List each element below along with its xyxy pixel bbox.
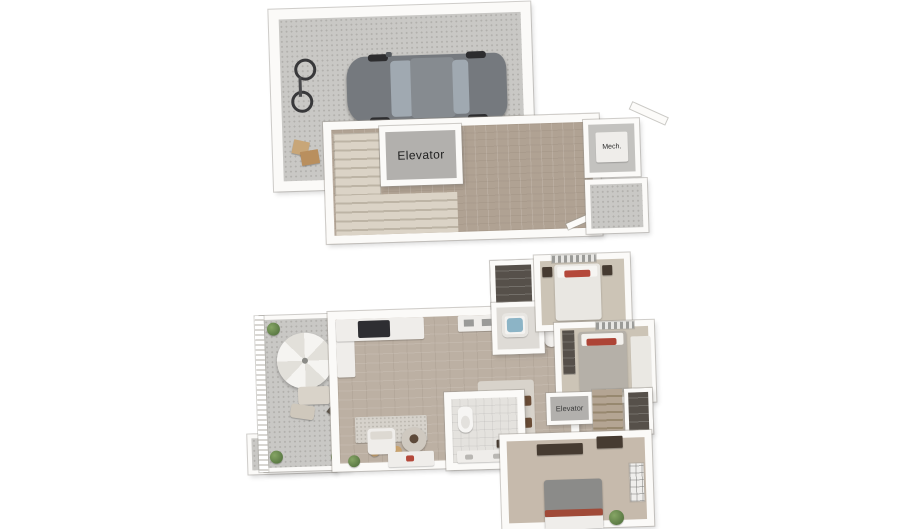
bicycle-wheel (294, 58, 317, 81)
potted-plant (270, 450, 283, 463)
table-centerpiece (409, 434, 418, 443)
car-rear-window (452, 60, 470, 114)
window (596, 321, 634, 329)
elevator-shaft-main: Elevator (546, 392, 593, 425)
sofa (367, 428, 396, 455)
mechanical-closet: Mech. (583, 118, 641, 178)
nightstand (602, 265, 612, 275)
patio-umbrella (276, 332, 334, 390)
storage-box (300, 149, 320, 166)
sofa-cushion (370, 431, 392, 440)
window (629, 463, 644, 501)
bed (578, 331, 628, 392)
mech-label: Mech. (602, 143, 621, 151)
red-accent-pillow (564, 270, 590, 278)
area-rug (630, 336, 652, 391)
sink-basin (465, 454, 473, 459)
umbrella-pole (302, 358, 308, 364)
car-mirror (386, 52, 392, 57)
decor-accent (406, 455, 414, 461)
elevator-shaft-garage: Elevator (379, 124, 463, 187)
bathtub (502, 313, 529, 338)
bed-sheets (545, 515, 603, 529)
potted-plant (348, 455, 360, 467)
bicycle-frame (298, 77, 302, 97)
sink (482, 319, 492, 326)
bathtub-water (507, 318, 523, 332)
elevator-label-main: Elevator (556, 403, 584, 413)
lounge-chair (298, 386, 331, 405)
potted-plant (267, 322, 280, 335)
red-accent-pillow (586, 338, 616, 346)
toilet-seat (461, 416, 470, 429)
small-appliance (464, 319, 474, 326)
car-roof (410, 57, 456, 118)
garage-level-plan: Elevator Mech. (266, 0, 642, 252)
lounge-chair (290, 403, 316, 420)
main-level-plan: Elevator (236, 248, 674, 529)
bed (554, 263, 602, 320)
potted-plant (609, 510, 624, 525)
cooktop (358, 320, 391, 338)
dresser (537, 443, 583, 455)
bicycle-wheel (291, 90, 314, 113)
staircase-lower-flight (335, 192, 458, 236)
elevator-label-garage: Elevator (397, 147, 445, 162)
bedroom-1 (534, 252, 632, 331)
closet-shelves (562, 330, 575, 374)
storage-room (585, 178, 649, 234)
car-wheel (466, 51, 486, 59)
wardrobe (596, 436, 622, 449)
nightstand (542, 267, 552, 277)
window (552, 255, 596, 263)
floor-plan-canvas: Elevator Mech. (0, 0, 900, 529)
bedroom-3 (499, 430, 654, 529)
water-heater: Mech. (595, 132, 628, 163)
car (346, 52, 508, 123)
media-credenza (388, 451, 434, 467)
toilet (457, 406, 473, 432)
bed (544, 478, 604, 529)
entry-hall: Elevator (323, 113, 603, 244)
coffee-table (401, 427, 427, 453)
hall-closet (624, 388, 653, 435)
